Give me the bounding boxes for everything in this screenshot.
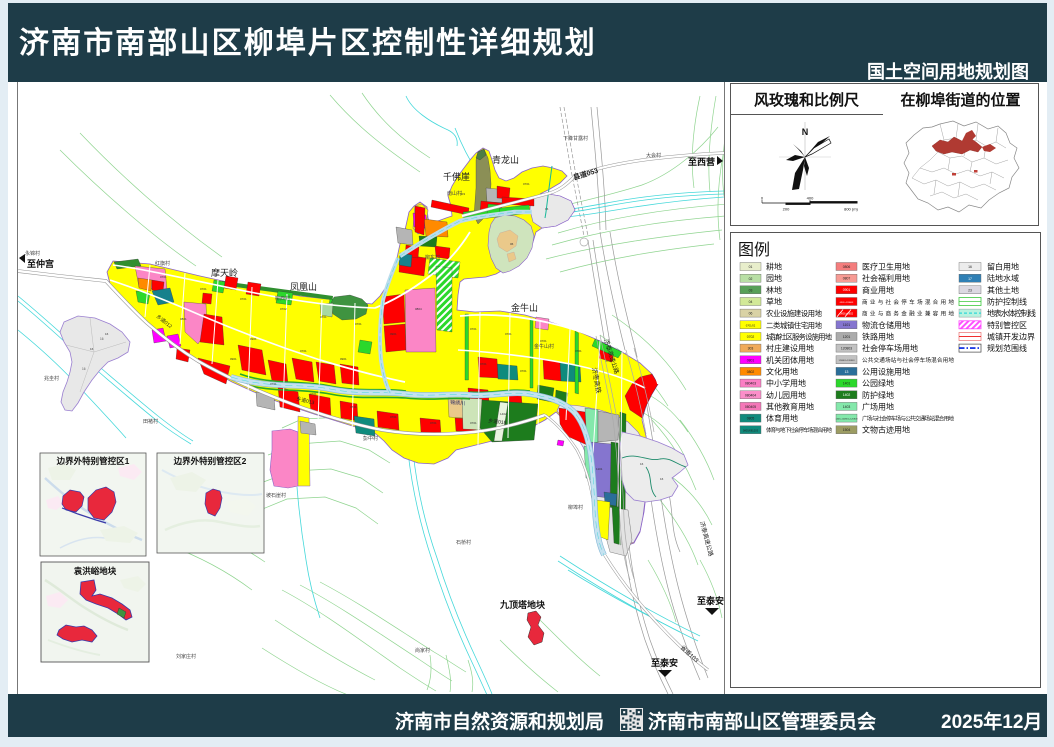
svg-text:柳东村: 柳东村: [425, 254, 440, 261]
svg-text:防护绿地: 防护绿地: [862, 389, 894, 399]
svg-text:0701: 0701: [320, 315, 327, 319]
svg-text:田褚村: 田褚村: [143, 418, 158, 425]
svg-text:800 (m): 800 (m): [844, 207, 858, 212]
svg-text:16: 16: [90, 347, 94, 351]
svg-text:0801: 0801: [747, 358, 755, 362]
svg-text:商业与商务金融业兼容用地: 商业与商务金融业兼容用地: [862, 309, 954, 317]
svg-text:0701: 0701: [470, 327, 477, 331]
svg-text:柳埠村: 柳埠村: [568, 504, 583, 511]
svg-text:16: 16: [545, 207, 549, 211]
svg-text:至仲宫: 至仲宫: [27, 258, 54, 269]
svg-text:1101: 1101: [843, 323, 850, 327]
svg-text:兆圭村: 兆圭村: [44, 375, 59, 382]
svg-text:0701: 0701: [540, 339, 547, 343]
svg-text:01: 01: [749, 265, 753, 269]
svg-text:0901: 0901: [390, 332, 397, 336]
svg-text:金牛山村: 金牛山村: [534, 343, 554, 350]
svg-text:080405: 080405: [745, 405, 756, 409]
svg-text:铁路用地: 铁路用地: [862, 331, 894, 341]
svg-text:幼儿园用地: 幼儿园用地: [766, 389, 806, 399]
svg-text:其他教育用地: 其他教育用地: [766, 401, 814, 411]
svg-text:0901: 0901: [230, 357, 237, 361]
svg-text:06: 06: [510, 242, 514, 246]
svg-text:0701: 0701: [505, 332, 512, 336]
svg-text:06: 06: [749, 311, 753, 315]
svg-text:0701: 0701: [575, 349, 582, 353]
svg-text:1402: 1402: [843, 393, 851, 397]
svg-text:0701: 0701: [430, 421, 437, 425]
svg-text:边界外特别管控区2: 边界外特别管控区2: [173, 456, 247, 466]
svg-text:济泰高速公路: 济泰高速公路: [698, 520, 715, 557]
svg-text:200: 200: [783, 207, 790, 212]
svg-text:永锦村: 永锦村: [25, 250, 40, 257]
svg-text:16: 16: [640, 462, 644, 466]
svg-text:0702: 0702: [280, 307, 287, 311]
svg-text:千佛崖: 千佛崖: [443, 171, 470, 182]
svg-text:04: 04: [749, 300, 753, 304]
svg-text:刘家庄村: 刘家庄村: [176, 653, 196, 660]
svg-text:中小学用地: 中小学用地: [766, 378, 806, 388]
svg-text:防护控制线: 防护控制线: [987, 296, 1027, 306]
svg-text:0701/02: 0701/02: [746, 323, 756, 327]
svg-text:商业与社会停车场混合用地: 商业与社会停车场混合用地: [862, 297, 954, 305]
svg-text:留白用地: 留白用地: [987, 261, 1019, 271]
svg-text:尚家村: 尚家村: [415, 647, 430, 654]
svg-text:02: 02: [749, 276, 753, 280]
svg-text:1201: 1201: [843, 334, 851, 338]
svg-text:16: 16: [82, 367, 86, 371]
svg-text:社会停车场用地: 社会停车场用地: [862, 343, 918, 353]
svg-text:至泰安: 至泰安: [651, 657, 678, 668]
svg-text:0804: 0804: [415, 307, 422, 311]
svg-text:0807: 0807: [843, 276, 851, 280]
svg-text:医疗卫生用地: 医疗卫生用地: [862, 261, 910, 271]
svg-text:1504: 1504: [843, 428, 851, 432]
svg-text:080404: 080404: [745, 393, 756, 397]
svg-text:公园绿地: 公园绿地: [862, 378, 894, 388]
svg-text:16: 16: [968, 265, 972, 269]
svg-text:耕地: 耕地: [766, 261, 782, 271]
svg-text:0701: 0701: [355, 322, 362, 326]
svg-text:石桥村: 石桥村: [456, 539, 471, 546]
svg-text:0701: 0701: [200, 287, 207, 291]
svg-text:彭中村: 彭中村: [363, 435, 378, 442]
svg-text:0701: 0701: [310, 392, 317, 396]
svg-text:园地: 园地: [766, 273, 782, 283]
svg-text:九顶塔地块: 九顶塔地块: [499, 599, 546, 610]
svg-text:1403+120801+120803: 1403+120801+120803: [835, 418, 858, 420]
svg-text:规划范围线: 规划范围线: [987, 343, 1027, 353]
svg-text:16: 16: [660, 477, 664, 481]
svg-text:0901+0902: 0901+0902: [840, 311, 854, 315]
svg-text:广场与社会停车场与公共交通场站混合用地: 广场与社会停车场与公共交通场站混合用地: [862, 414, 954, 422]
svg-text:0901: 0901: [843, 288, 851, 292]
svg-text:物流仓储用地: 物流仓储用地: [862, 319, 910, 329]
svg-text:16: 16: [100, 337, 104, 341]
svg-text:红旗村: 红旗村: [155, 260, 170, 267]
svg-text:0901+120803: 0901+120803: [840, 301, 854, 303]
svg-text:城镇开发边界: 城镇开发边界: [987, 331, 1035, 341]
svg-text:至泰安: 至泰安: [697, 595, 724, 606]
svg-text:0901: 0901: [250, 337, 257, 341]
svg-text:大会村: 大会村: [646, 152, 661, 159]
svg-text:0701: 0701: [520, 369, 527, 373]
svg-text:080403: 080403: [745, 381, 756, 385]
svg-text:公共交通场站与社会停车场混合用地: 公共交通场站与社会停车场混合用地: [862, 356, 954, 364]
svg-text:23: 23: [968, 288, 972, 292]
svg-text:0701: 0701: [350, 405, 357, 409]
svg-text:0701: 0701: [240, 297, 247, 301]
svg-text:公用设施用地: 公用设施用地: [862, 366, 910, 376]
svg-text:0: 0: [761, 196, 764, 201]
svg-text:0801: 0801: [180, 317, 187, 321]
svg-text:0701: 0701: [390, 415, 397, 419]
svg-text:二类城镇住宅用地: 二类城镇住宅用地: [766, 320, 823, 329]
svg-text:0701: 0701: [470, 421, 477, 425]
svg-text:0901: 0901: [340, 357, 347, 361]
svg-text:广场用地: 广场用地: [862, 401, 894, 411]
svg-text:柳西村: 柳西村: [275, 295, 290, 302]
svg-text:N: N: [802, 127, 809, 137]
svg-text:1402: 1402: [500, 412, 507, 416]
svg-text:摩天岭: 摩天岭: [211, 267, 238, 278]
svg-text:机关团体用地: 机关团体用地: [766, 354, 814, 364]
svg-text:城镇社区服务设施用地: 城镇社区服务设施用地: [766, 332, 833, 341]
svg-text:特别管控区: 特别管控区: [987, 319, 1027, 329]
svg-text:1403: 1403: [843, 404, 851, 408]
svg-text:0805/081203: 0805/081203: [743, 428, 759, 432]
svg-text:地表水体控制线: 地表水体控制线: [987, 308, 1036, 318]
svg-text:体育与地下社会停车场混合用地: 体育与地下社会停车场混合用地: [766, 426, 832, 434]
svg-text:03: 03: [749, 288, 753, 292]
svg-text:0701: 0701: [270, 382, 277, 386]
svg-text:0701: 0701: [523, 182, 530, 186]
svg-text:17: 17: [968, 276, 972, 280]
svg-text:120803: 120803: [841, 346, 852, 350]
svg-text:0805: 0805: [747, 416, 755, 420]
svg-text:120801+120803: 120801+120803: [839, 360, 856, 362]
svg-text:文物古迹用地: 文物古迹用地: [862, 424, 910, 434]
svg-text:文化用地: 文化用地: [766, 366, 798, 376]
svg-text:商业用地: 商业用地: [862, 284, 894, 294]
svg-text:0701: 0701: [480, 362, 487, 366]
svg-text:社会福利用地: 社会福利用地: [862, 273, 910, 283]
svg-text:陆地水域: 陆地水域: [987, 273, 1019, 283]
svg-text:农业设施建设用地: 农业设施建设用地: [766, 309, 823, 318]
svg-text:16: 16: [105, 332, 109, 336]
svg-text:边界外特别管控区1: 边界外特别管控区1: [56, 456, 130, 466]
svg-text:13: 13: [845, 369, 849, 373]
svg-text:下降甘露村: 下降甘露村: [563, 135, 588, 142]
svg-text:坡石崖村: 坡石崖村: [266, 492, 286, 499]
svg-text:林地: 林地: [766, 284, 782, 294]
svg-text:村庄建设用地: 村庄建设用地: [766, 343, 814, 353]
svg-text:1101: 1101: [596, 467, 603, 471]
svg-text:0806: 0806: [843, 264, 851, 268]
svg-text:0702: 0702: [747, 335, 755, 339]
svg-text:金牛山: 金牛山: [511, 302, 538, 313]
svg-text:草地: 草地: [766, 296, 782, 306]
svg-text:其他土地: 其他土地: [987, 284, 1019, 294]
svg-text:303: 303: [748, 346, 754, 350]
svg-text:0701: 0701: [300, 349, 307, 353]
svg-text:县道053: 县道053: [572, 166, 599, 182]
svg-text:青龙山: 青龙山: [492, 154, 519, 165]
svg-text:锦绣川: 锦绣川: [450, 399, 465, 407]
svg-text:南山村: 南山村: [447, 190, 462, 197]
svg-text:0802: 0802: [747, 370, 755, 374]
svg-text:袁洪峪地块: 袁洪峪地块: [73, 566, 117, 576]
svg-text:400: 400: [807, 196, 814, 201]
svg-text:体育用地: 体育用地: [766, 413, 798, 423]
svg-text:至西营: 至西营: [688, 156, 715, 167]
svg-text:1401: 1401: [843, 381, 851, 385]
svg-text:凤凰山: 凤凰山: [290, 282, 317, 292]
svg-text:0701: 0701: [160, 275, 167, 279]
